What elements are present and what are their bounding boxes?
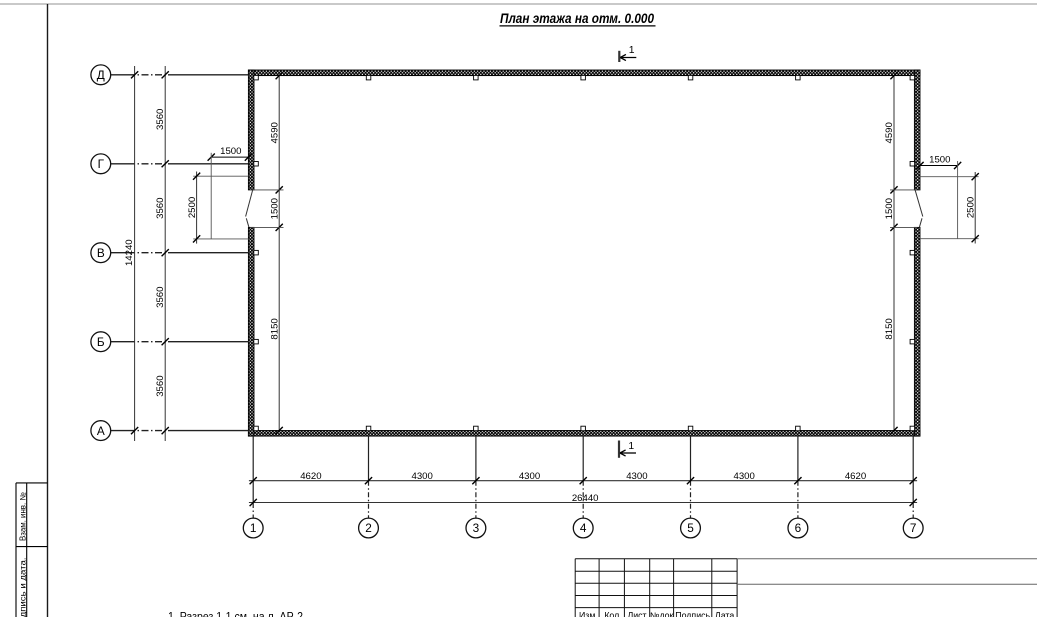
svg-text:Подпись и дата.: Подпись и дата. (19, 558, 28, 617)
svg-text:14240: 14240 (124, 239, 135, 266)
svg-text:Взам. инв. №: Взам. инв. № (19, 492, 28, 541)
svg-text:3560: 3560 (155, 198, 166, 219)
svg-text:8150: 8150 (884, 318, 895, 339)
svg-text:Лист: Лист (627, 610, 646, 617)
svg-text:Подпись: Подпись (675, 610, 710, 617)
svg-text:В: В (97, 246, 105, 260)
svg-text:4620: 4620 (300, 471, 321, 482)
svg-text:3560: 3560 (155, 375, 166, 396)
svg-text:1: 1 (628, 441, 634, 452)
svg-text:Г: Г (98, 157, 105, 171)
svg-text:Б: Б (97, 335, 105, 349)
svg-text:3560: 3560 (155, 287, 166, 308)
svg-text:2: 2 (365, 521, 372, 535)
svg-text:1500: 1500 (929, 155, 950, 166)
svg-text:7: 7 (910, 521, 917, 535)
svg-text:1500: 1500 (220, 146, 241, 157)
svg-text:4590: 4590 (269, 122, 280, 143)
svg-text:1. Разрез 1-1 см. на л. АР-2: 1. Разрез 1-1 см. на л. АР-2 (168, 610, 303, 617)
svg-text:4300: 4300 (734, 471, 755, 482)
svg-text:1500: 1500 (884, 198, 895, 219)
svg-text:3: 3 (473, 521, 480, 535)
svg-text:1: 1 (250, 521, 257, 535)
svg-text:Изм: Изм (579, 610, 595, 617)
svg-text:4620: 4620 (845, 471, 866, 482)
svg-text:26440: 26440 (572, 493, 599, 504)
svg-text:Кол: Кол (604, 610, 619, 617)
svg-text:3560: 3560 (155, 109, 166, 130)
svg-text:4300: 4300 (412, 471, 433, 482)
svg-text:№док: №док (650, 610, 673, 617)
svg-text:1: 1 (629, 45, 635, 56)
svg-text:5: 5 (687, 521, 694, 535)
svg-text:План этажа на отм. 0.000: План этажа на отм. 0.000 (500, 11, 654, 26)
svg-text:2500: 2500 (966, 197, 977, 218)
svg-text:1500: 1500 (269, 198, 280, 219)
svg-text:А: А (97, 424, 105, 438)
svg-text:8150: 8150 (269, 318, 280, 339)
svg-text:2500: 2500 (187, 197, 198, 218)
svg-text:4590: 4590 (884, 122, 895, 143)
svg-text:6: 6 (795, 521, 802, 535)
svg-text:4300: 4300 (519, 471, 540, 482)
svg-text:4: 4 (580, 521, 587, 535)
svg-text:4300: 4300 (626, 471, 647, 482)
svg-text:Дата: Дата (715, 610, 735, 617)
svg-text:Д: Д (97, 68, 105, 82)
